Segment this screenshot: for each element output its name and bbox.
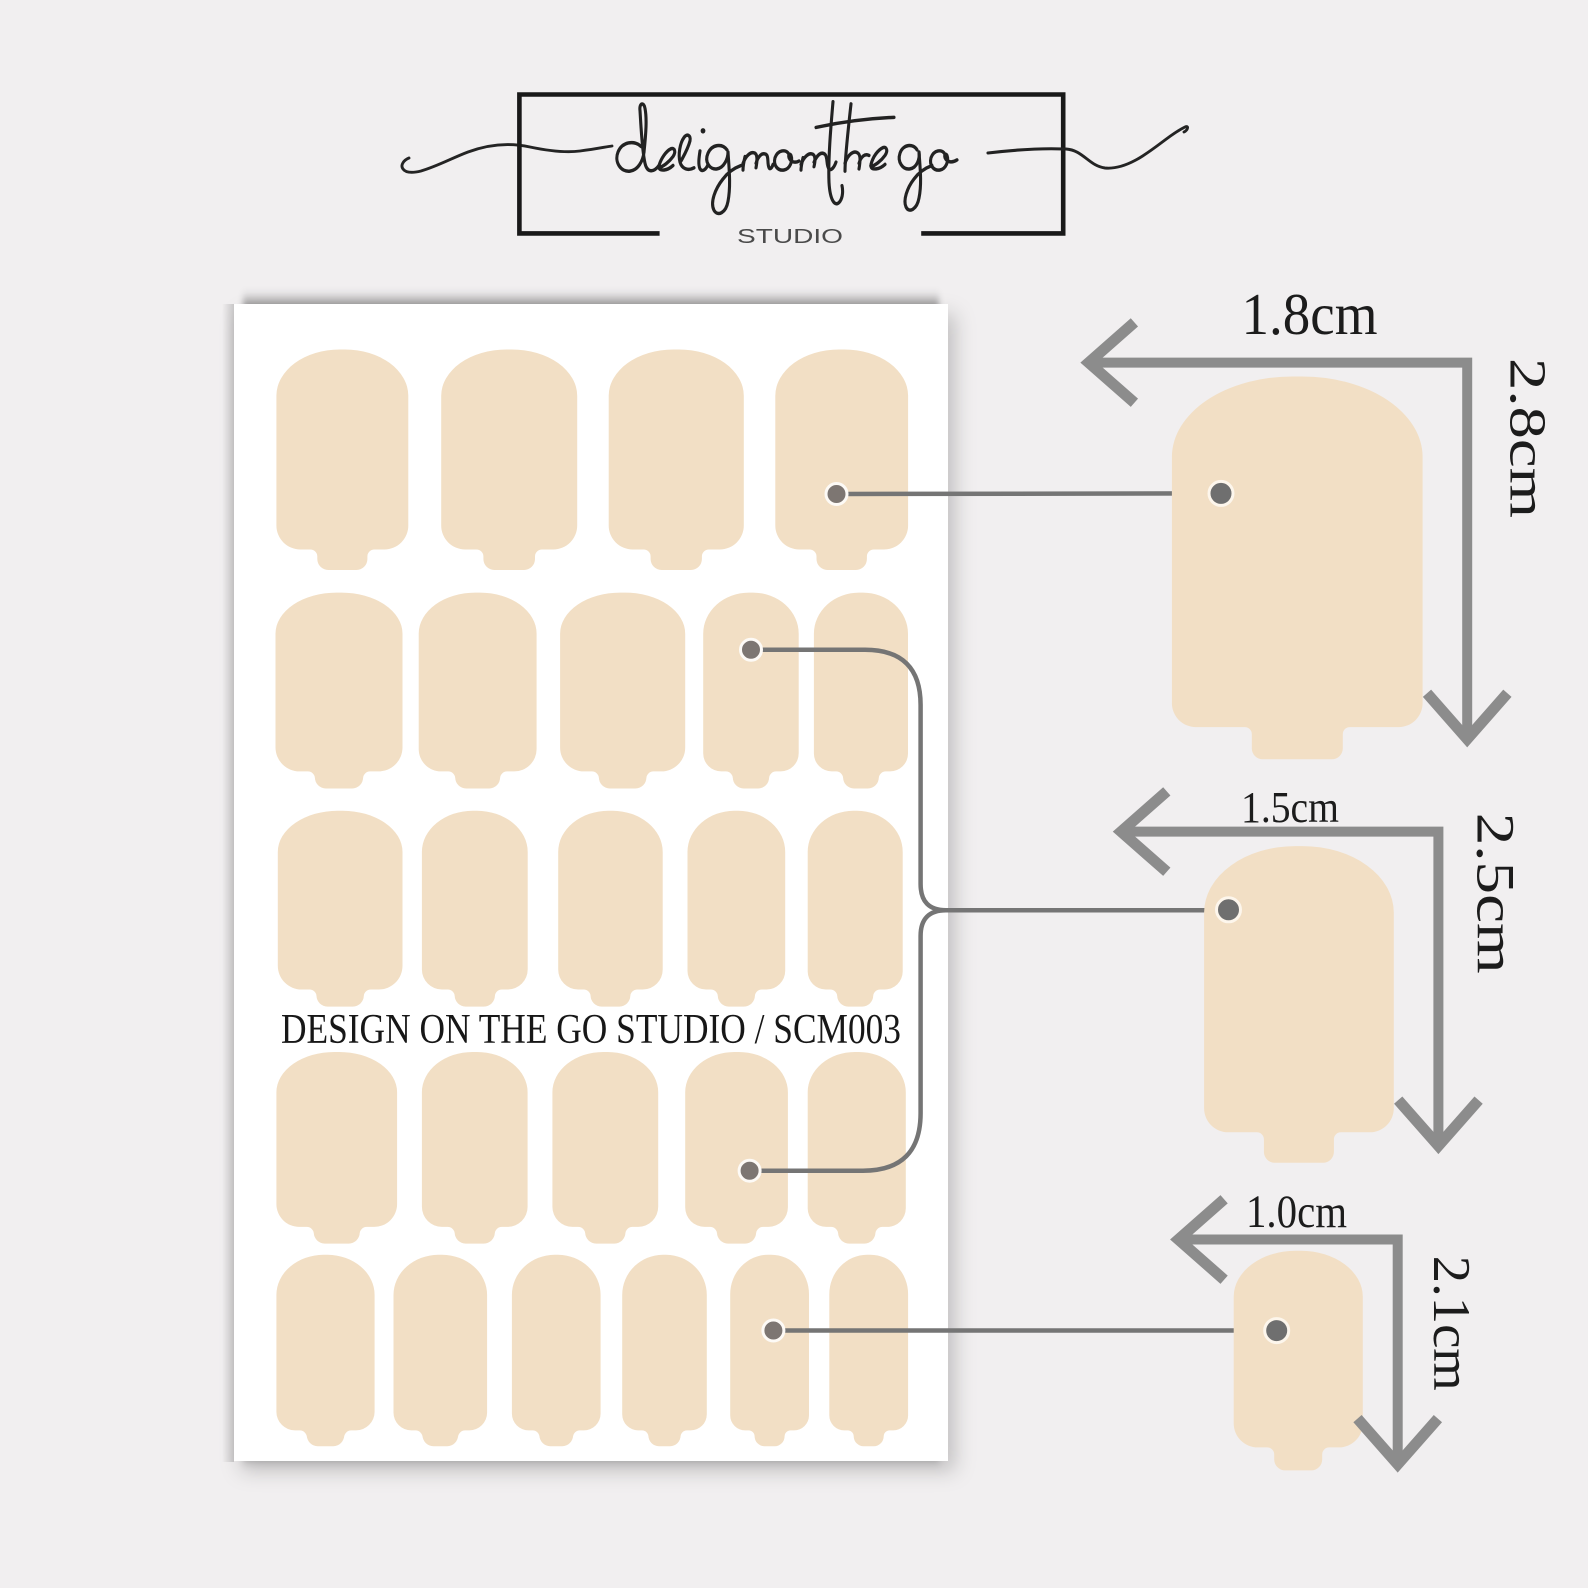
svg-text:2.8cm: 2.8cm [1499, 358, 1556, 518]
svg-text:2.1cm: 2.1cm [1422, 1256, 1480, 1391]
svg-text:2.5cm: 2.5cm [1465, 813, 1525, 974]
svg-text:1.0cm: 1.0cm [1246, 1186, 1347, 1238]
svg-text:1.8cm: 1.8cm [1242, 281, 1378, 347]
svg-text:STUDIO: STUDIO [737, 226, 843, 248]
svg-text:1.5cm: 1.5cm [1241, 783, 1339, 832]
svg-text:DESIGN ON THE GO STUDIO / SCM0: DESIGN ON THE GO STUDIO / SCM003 [281, 1007, 901, 1053]
